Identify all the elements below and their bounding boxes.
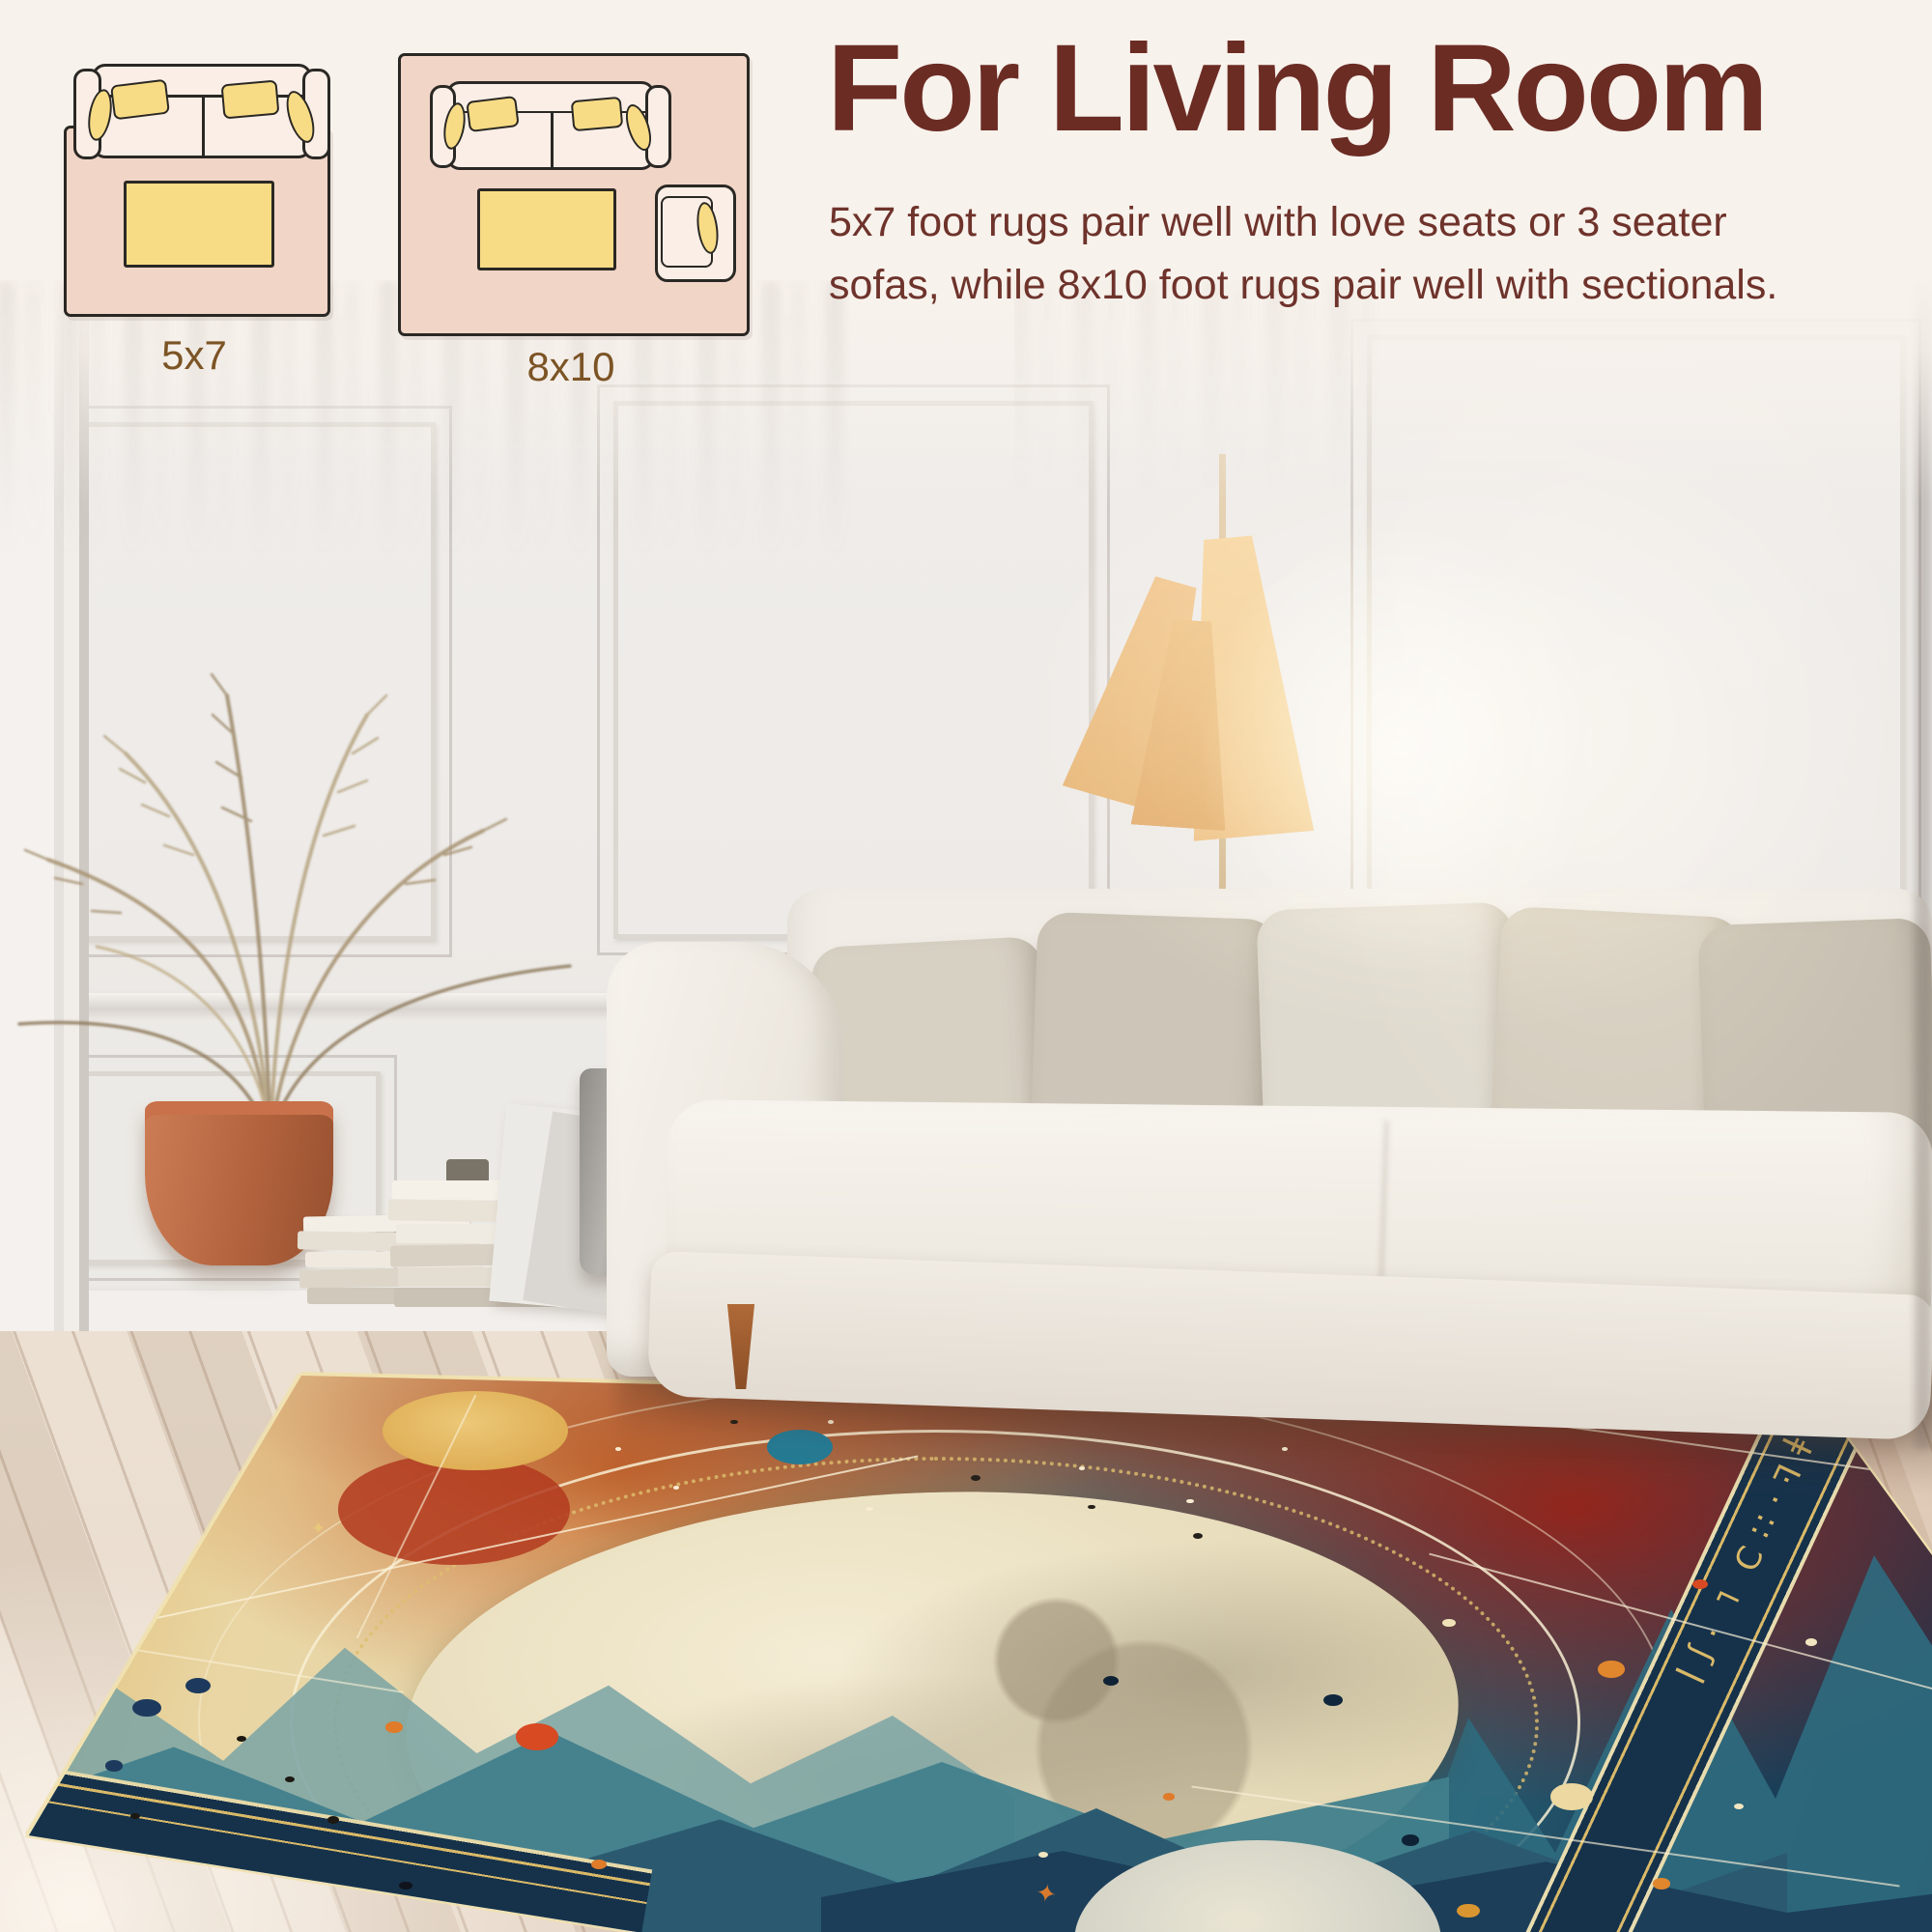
rug-dot xyxy=(399,1882,412,1890)
rug-dot xyxy=(385,1721,403,1732)
rug-dot xyxy=(1186,1499,1194,1504)
rug-dot xyxy=(1103,1676,1119,1686)
rug-dot xyxy=(615,1447,621,1451)
size-label-8x10: 8x10 xyxy=(398,344,744,390)
rug-dot xyxy=(327,1816,339,1823)
rug-dot xyxy=(185,1678,211,1693)
rug-dot xyxy=(285,1776,295,1782)
page-title: For Living Room xyxy=(827,27,1766,151)
rug-dot xyxy=(82,1522,111,1541)
description-line-1: 5x7 foot rugs pair well with love seats … xyxy=(829,191,1777,254)
rug-dot xyxy=(1805,1638,1817,1645)
rug-dot xyxy=(1038,1852,1048,1858)
diagram-pillow-icon xyxy=(571,97,624,131)
rug-dot xyxy=(1653,1878,1670,1889)
rug-dot xyxy=(1079,1466,1085,1470)
rug-dot xyxy=(1163,1793,1175,1800)
rug-dot xyxy=(105,1760,123,1771)
rug-dot xyxy=(237,1736,246,1742)
rug-dot xyxy=(130,1813,140,1819)
right-edge-shadow xyxy=(1915,280,1932,1449)
diagram-pillow-icon xyxy=(466,96,520,132)
rug-dot xyxy=(1193,1533,1203,1539)
rug-dot xyxy=(971,1475,980,1481)
diagram-coffee-table-icon xyxy=(477,188,616,270)
window-light xyxy=(1304,290,1932,1207)
rug-dot xyxy=(1323,1694,1343,1706)
rug-dot xyxy=(516,1723,558,1749)
star-icon: ✦ xyxy=(311,1519,326,1539)
rug-dot xyxy=(132,1699,161,1718)
rug-dot xyxy=(1692,1579,1708,1589)
page-description: 5x7 foot rugs pair well with love seats … xyxy=(829,191,1777,316)
rug-dot xyxy=(1088,1505,1095,1510)
rug-dot xyxy=(591,1860,607,1869)
rug-dot xyxy=(493,1917,512,1928)
rug-dot xyxy=(1442,1619,1456,1628)
size-diagram-8x10: 8x10 xyxy=(0,0,773,406)
product-infographic: { "header": { "title": "For Living Room"… xyxy=(0,0,1932,1932)
rug-dot xyxy=(866,1507,873,1512)
rug-dot xyxy=(1734,1804,1744,1809)
rug-dot xyxy=(1457,1904,1480,1918)
rug-dot xyxy=(1402,1834,1419,1845)
rug-dot xyxy=(87,1683,97,1689)
description-line-2: sofas, while 8x10 foot rugs pair well wi… xyxy=(829,254,1777,317)
rug-dot xyxy=(673,1486,679,1490)
rug-dot xyxy=(1550,1783,1593,1809)
rug-dot xyxy=(1598,1661,1625,1677)
